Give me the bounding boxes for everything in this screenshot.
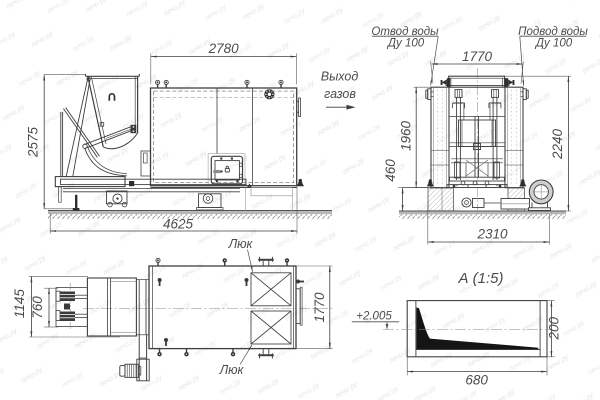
svg-text:2575: 2575 xyxy=(26,126,41,158)
svg-text:1145: 1145 xyxy=(12,289,27,319)
svg-text:А (1:5): А (1:5) xyxy=(457,270,503,287)
svg-text:2780: 2780 xyxy=(208,41,240,56)
svg-text:1770: 1770 xyxy=(462,49,493,64)
svg-text:2310: 2310 xyxy=(476,227,508,242)
svg-text:680: 680 xyxy=(465,373,488,388)
svg-text:Выход: Выход xyxy=(321,70,359,84)
svg-text:460: 460 xyxy=(383,159,398,182)
svg-text:газов: газов xyxy=(324,87,356,101)
svg-text:+2.005: +2.005 xyxy=(356,310,392,322)
svg-text:Люк: Люк xyxy=(219,363,245,377)
svg-text:760: 760 xyxy=(30,296,45,319)
svg-text:200: 200 xyxy=(546,316,561,340)
svg-text:Ду 100: Ду 100 xyxy=(534,38,573,50)
svg-text:1770: 1770 xyxy=(312,292,327,323)
svg-text:Люк: Люк xyxy=(228,237,254,251)
svg-text:4625: 4625 xyxy=(163,216,194,231)
svg-text:2240: 2240 xyxy=(550,128,565,160)
svg-text:1960: 1960 xyxy=(398,120,413,151)
svg-text:Ду 100: Ду 100 xyxy=(386,38,425,50)
